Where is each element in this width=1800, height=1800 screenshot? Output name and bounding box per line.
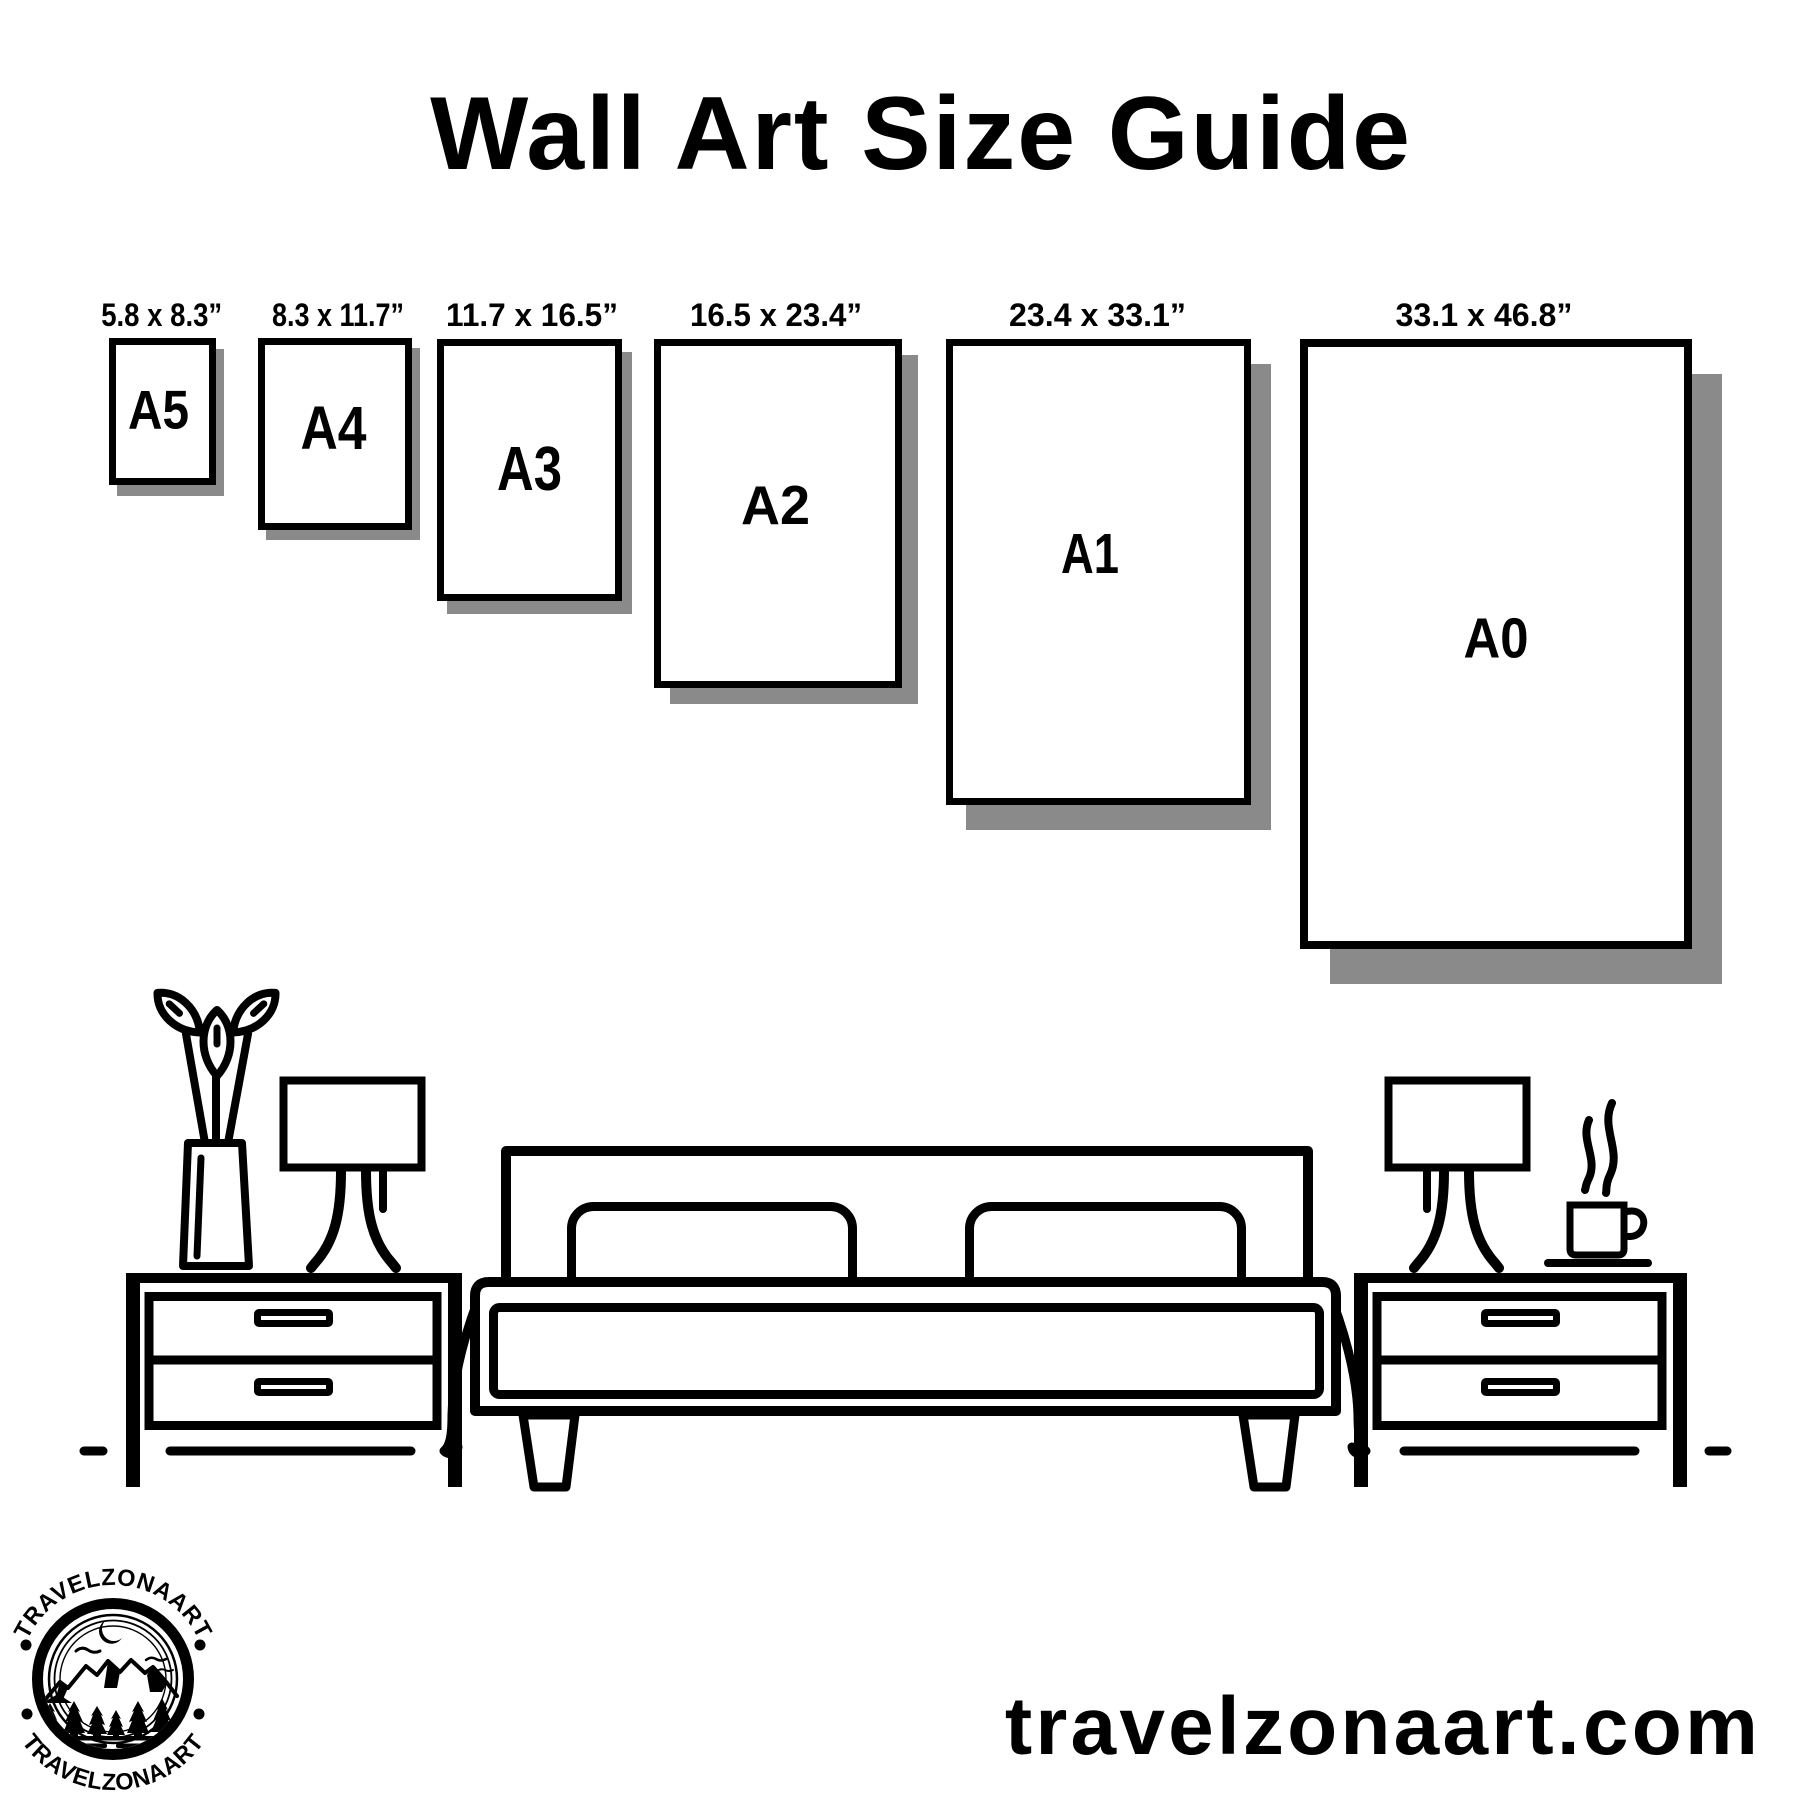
svg-text:A2: A2 (741, 474, 810, 536)
svg-text:Wall Art Size Guide: Wall Art Size Guide (430, 76, 1412, 192)
svg-text:A4: A4 (301, 394, 367, 462)
svg-text:16.5 x 23.4”: 16.5 x 23.4” (690, 297, 862, 333)
svg-text:5.8 x 8.3”: 5.8 x 8.3” (101, 297, 222, 333)
svg-text:A5: A5 (128, 379, 189, 441)
svg-text:23.4 x 33.1”: 23.4 x 33.1” (1009, 297, 1186, 333)
svg-text:travelzonaart.com: travelzonaart.com (1005, 1681, 1761, 1772)
svg-text:A3: A3 (497, 435, 562, 504)
svg-text:11.7 x 16.5”: 11.7 x 16.5” (446, 297, 618, 333)
svg-text:A0: A0 (1464, 607, 1529, 671)
svg-text:A1: A1 (1061, 522, 1119, 586)
svg-text:33.1 x 46.8”: 33.1 x 46.8” (1396, 297, 1573, 333)
svg-text:8.3 x 11.7”: 8.3 x 11.7” (272, 297, 404, 333)
